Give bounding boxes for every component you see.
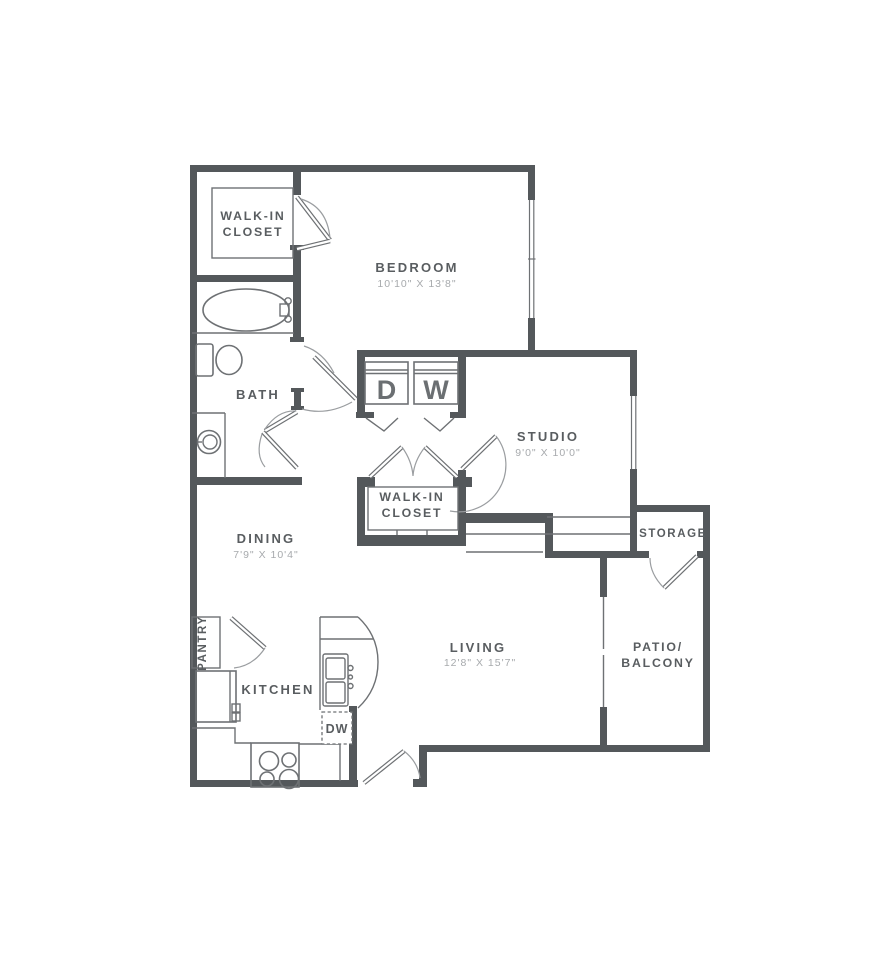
storage-label: STORAGE bbox=[639, 528, 707, 540]
walk-in-closet-1: WALK-IN CLOSET bbox=[212, 188, 330, 258]
bedroom-dims: 10'10" X 13'8" bbox=[377, 278, 456, 290]
living-label: LIVING bbox=[450, 640, 507, 655]
entry-door bbox=[364, 751, 420, 783]
closet2-label-line2: CLOSET bbox=[382, 506, 443, 520]
studio-label: STUDIO bbox=[517, 429, 579, 444]
patio-label-line1: PATIO/ bbox=[633, 640, 683, 654]
kitchen-sink-icon bbox=[323, 654, 353, 706]
bath: BATH bbox=[192, 289, 297, 478]
living: LIVING 12'8" X 15'7" bbox=[364, 640, 516, 783]
patio-label-line2: BALCONY bbox=[621, 656, 694, 670]
dining-dims: 7'9" X 10'4" bbox=[233, 549, 299, 561]
dryer-icon: D bbox=[365, 362, 408, 405]
closet2-double-doors bbox=[370, 447, 457, 477]
closet2-label-line1: WALK-IN bbox=[379, 490, 444, 504]
closet1-label-line1: WALK-IN bbox=[220, 209, 285, 223]
pantry-door bbox=[231, 618, 265, 668]
dishwasher-label: DW bbox=[326, 722, 349, 736]
refrigerator-icon bbox=[196, 671, 240, 722]
washer-icon: W bbox=[414, 362, 458, 405]
pantry-label: PANTRY bbox=[197, 615, 209, 671]
pantry: PANTRY bbox=[192, 615, 265, 671]
washer-letter: W bbox=[423, 375, 449, 405]
bedroom-window bbox=[526, 200, 537, 318]
bedroom-label: BEDROOM bbox=[375, 260, 458, 275]
dishwasher-box: DW bbox=[322, 712, 352, 744]
storage-door bbox=[650, 556, 697, 588]
floor-plan-page: WALK-IN CLOSET BEDROOM 10'10" X 13'8" bbox=[0, 0, 877, 960]
toilet-icon bbox=[196, 344, 242, 376]
dining: DINING 7'9" X 10'4" bbox=[233, 531, 299, 561]
storage: STORAGE bbox=[639, 528, 707, 588]
bath-doors bbox=[259, 411, 297, 468]
bifold-doors bbox=[366, 418, 454, 431]
dining-label: DINING bbox=[237, 531, 296, 546]
walk-in-closet-2: WALK-IN CLOSET bbox=[368, 447, 458, 535]
patio-balcony: PATIO/ BALCONY bbox=[621, 640, 694, 670]
living-dims: 12'8" X 15'7" bbox=[444, 657, 516, 669]
laundry-closet: D W bbox=[365, 362, 458, 431]
closet1-label-line2: CLOSET bbox=[223, 225, 284, 239]
kitchen-label: KITCHEN bbox=[241, 682, 314, 697]
studio-window bbox=[628, 396, 639, 469]
floor-plan: WALK-IN CLOSET BEDROOM 10'10" X 13'8" bbox=[0, 0, 877, 960]
bath-label: BATH bbox=[236, 387, 280, 402]
closet1-door bbox=[297, 197, 330, 249]
studio-dims: 9'0" X 10'0" bbox=[515, 447, 581, 459]
bathtub-icon bbox=[203, 289, 291, 331]
dryer-letter: D bbox=[377, 375, 397, 405]
studio: STUDIO 9'0" X 10'0" bbox=[450, 429, 581, 512]
bedroom-door bbox=[302, 346, 356, 411]
